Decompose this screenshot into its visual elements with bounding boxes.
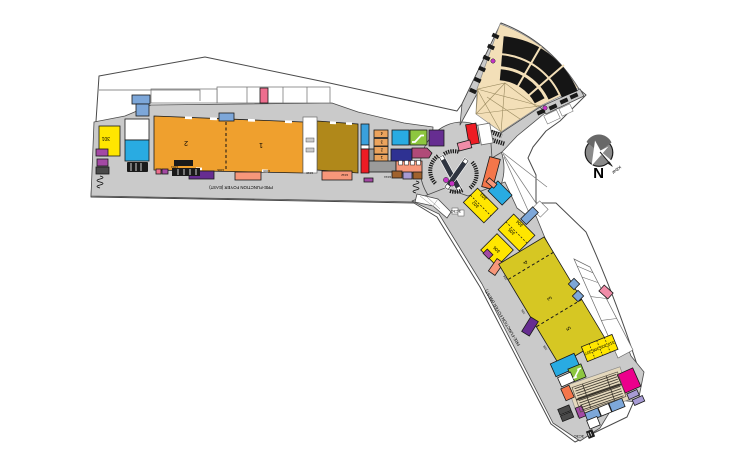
svg-text:N: N <box>593 164 604 181</box>
svg-text:2: 2 <box>184 139 188 146</box>
svg-text:1010: 1010 <box>306 171 313 175</box>
svg-text:1008: 1008 <box>263 169 270 173</box>
svg-text:1014: 1014 <box>384 175 391 179</box>
svg-text:1006: 1006 <box>217 168 224 172</box>
svg-text:3C3C: 3C3C <box>574 434 584 439</box>
svg-text:PRE-FUNCTION FOYER (EAST): PRE-FUNCTION FOYER (EAST) <box>209 185 273 190</box>
svg-text:3C3C: 3C3C <box>451 209 461 214</box>
svg-text:1: 1 <box>259 141 263 148</box>
svg-text:1004: 1004 <box>171 165 178 169</box>
svg-text:1012: 1012 <box>341 173 348 177</box>
svg-text:301: 301 <box>101 135 110 141</box>
